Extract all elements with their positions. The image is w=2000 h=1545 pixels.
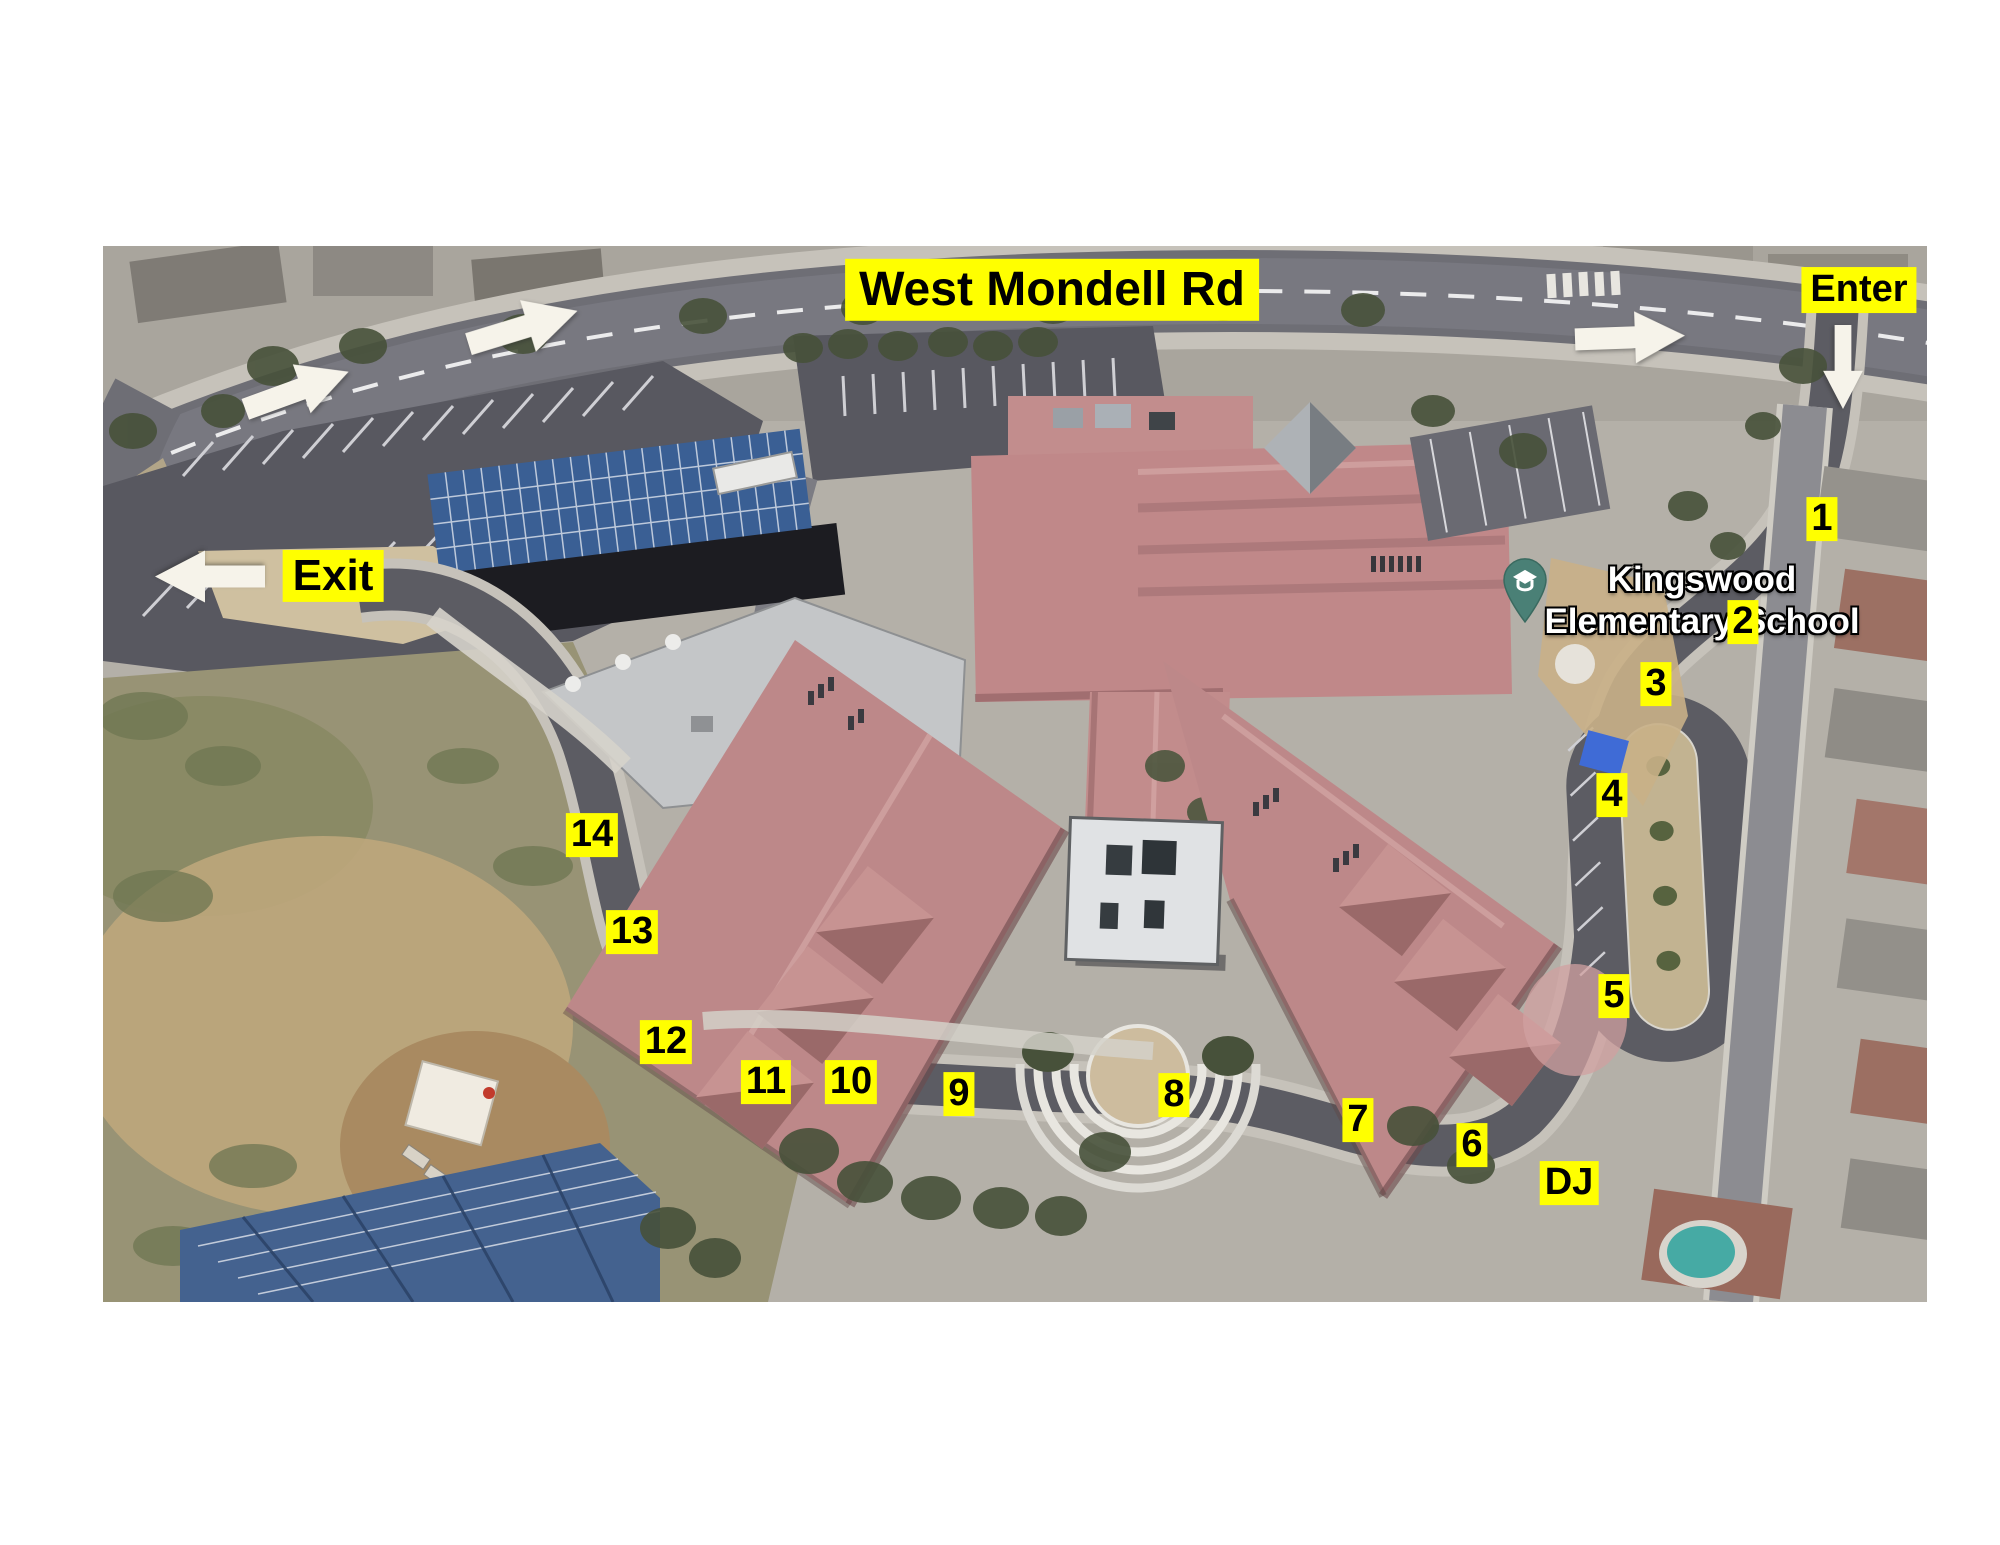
- satellite-map: [103, 246, 1927, 1302]
- gray-square-building: [1065, 817, 1230, 970]
- swimming-pool: [1667, 1226, 1735, 1278]
- satellite-backdrop: [103, 246, 1927, 1302]
- pool-house: [1641, 1189, 1792, 1300]
- canopy-red-dot: [483, 1087, 495, 1099]
- route-map-page: West Mondell Rd Enter Exit Kingswood Ele…: [0, 0, 2000, 1545]
